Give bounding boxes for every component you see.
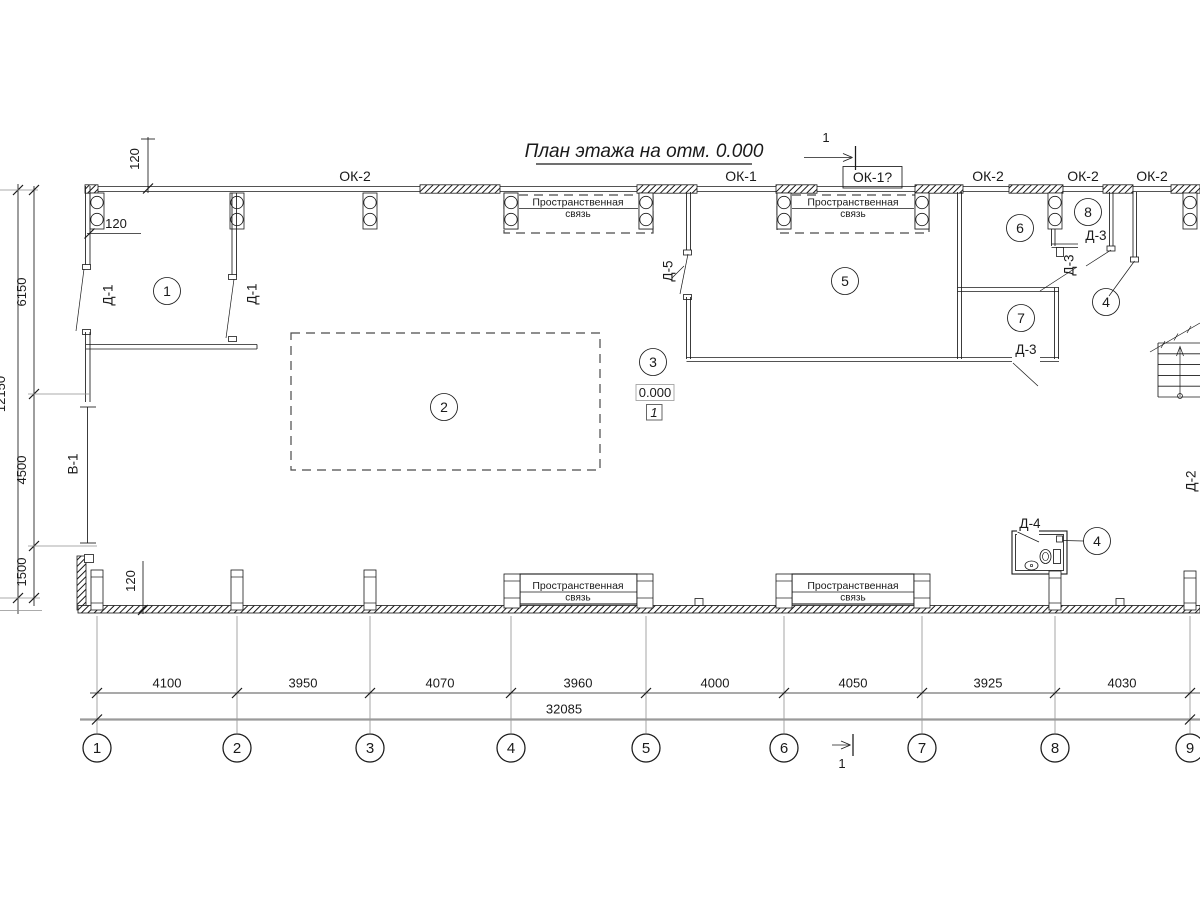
axis-circle-5: 5 bbox=[632, 734, 660, 762]
room-circles: 1 2 3 5 6 7 8 4 4 bbox=[154, 199, 1120, 555]
window-label-ok2: ОК-2 bbox=[1136, 168, 1168, 184]
room-circle-4a: 4 bbox=[1093, 289, 1120, 316]
room-number: 1 bbox=[163, 283, 171, 299]
spatial-tie-top-1: Пространственная связь bbox=[504, 193, 653, 233]
door-leaf bbox=[76, 269, 84, 331]
dim-bottom-7: 4030 bbox=[1108, 676, 1137, 691]
title-text: План этажа на отм. 0.000 bbox=[525, 141, 764, 162]
column bbox=[1184, 571, 1196, 610]
dim-bottom-6: 3925 bbox=[974, 676, 1003, 691]
axis-circle-2: 2 bbox=[223, 734, 251, 762]
drawing-title: План этажа на отм. 0.000 bbox=[525, 141, 764, 164]
spatial-tie-line1: Пространственная bbox=[807, 580, 898, 592]
dim-left-total: 12150 bbox=[0, 376, 8, 412]
spatial-tie-line1: Пространственная bbox=[532, 197, 623, 209]
column bbox=[1183, 193, 1197, 229]
dimensions-left: 12150 6150 4500 1500 bbox=[0, 184, 97, 614]
dim-wall-120: 120 bbox=[105, 216, 127, 231]
room-number: 6 bbox=[1016, 220, 1024, 236]
room-circle-1: 1 bbox=[154, 278, 181, 305]
dimensions-bottom: 4100 3950 4070 3960 4000 4050 3925 4030 … bbox=[80, 616, 1200, 733]
door-label-d5: Д-5 bbox=[661, 260, 676, 281]
room-circle-5: 5 bbox=[832, 268, 859, 295]
spatial-tie-line2: связь bbox=[565, 209, 590, 220]
axis-circle-6: 6 bbox=[770, 734, 798, 762]
dim-bottom-1: 3950 bbox=[289, 676, 318, 691]
left-wall bbox=[76, 186, 96, 543]
axis-circle-1: 1 bbox=[83, 734, 111, 762]
door-leaf bbox=[226, 279, 234, 338]
window-label-ok1: ОК-1 bbox=[725, 168, 757, 184]
axis-circle-9: 9 bbox=[1176, 734, 1200, 762]
top-wall bbox=[85, 185, 1200, 193]
window-label-ok1-alt: ОК-1? bbox=[853, 169, 892, 185]
room-number: 2 bbox=[440, 399, 448, 415]
gate-label-v1: В-1 bbox=[66, 453, 81, 474]
axis-circle-3: 3 bbox=[356, 734, 384, 762]
room-number: 7 bbox=[1017, 310, 1025, 326]
door-label-d3: Д-3 bbox=[1085, 228, 1106, 243]
column bbox=[363, 193, 377, 229]
section-mark-bottom: 1 bbox=[832, 734, 853, 771]
axis-number: 2 bbox=[233, 740, 241, 757]
window-label-ok2: ОК-2 bbox=[1067, 168, 1099, 184]
leader-line bbox=[1063, 541, 1084, 542]
dim-bottom-0: 4100 bbox=[153, 676, 182, 691]
axis-circles: 1 2 3 4 5 6 7 8 9 bbox=[83, 734, 1200, 762]
dim-bottom-4: 4000 bbox=[701, 676, 730, 691]
door-leaf bbox=[1086, 250, 1111, 266]
door-label-d4: Д-4 bbox=[1019, 516, 1041, 531]
dim-wall-120: 120 bbox=[127, 148, 142, 170]
spatial-tie-bottom-1: Пространственная связь bbox=[504, 574, 653, 608]
axis-number: 3 bbox=[366, 740, 374, 757]
section-label: 1 bbox=[838, 756, 845, 771]
section-label: 1 bbox=[822, 130, 829, 145]
section-mark-top: 1 bbox=[804, 130, 856, 170]
axis-circle-8: 8 bbox=[1041, 734, 1069, 762]
room-circle-3: 3 bbox=[640, 349, 667, 376]
door-label-d3: Д-3 bbox=[1062, 254, 1077, 275]
room-circle-8: 8 bbox=[1075, 199, 1102, 226]
spatial-tie-line2: связь bbox=[840, 593, 865, 604]
door-label-d1: Д-1 bbox=[101, 284, 116, 305]
spatial-tie-line1: Пространственная bbox=[532, 580, 623, 592]
room-circle-7: 7 bbox=[1008, 305, 1035, 332]
break-line bbox=[1150, 323, 1200, 352]
door-leaf bbox=[680, 254, 688, 294]
dim-bottom-2: 4070 bbox=[426, 676, 455, 691]
door-label-d1: Д-1 bbox=[245, 283, 260, 304]
axis-number: 1 bbox=[93, 740, 101, 757]
column bbox=[231, 570, 243, 610]
column bbox=[91, 570, 103, 610]
spatial-tie-line2: связь bbox=[565, 593, 590, 604]
stairs bbox=[1150, 323, 1200, 399]
spatial-tie-bottom-2: Пространственная связь bbox=[776, 574, 930, 608]
room-circle-2: 2 bbox=[431, 394, 458, 421]
axis-number: 8 bbox=[1051, 740, 1059, 757]
axis-number: 5 bbox=[642, 740, 650, 757]
spatial-tie-top-2: Пространственная связь bbox=[777, 193, 929, 233]
floor-plan-drawing: План этажа на отм. 0.000 1 1 ОК-2 ОК-1 О… bbox=[0, 0, 1200, 900]
dim-left-2: 1500 bbox=[14, 558, 29, 587]
room-number: 3 bbox=[649, 354, 657, 370]
door-labels: Д-1 Д-1 Д-5 Д-3 Д-3 Д-3 Д-4 Д-2 В-1 bbox=[66, 228, 1199, 531]
axis-circle-7: 7 bbox=[908, 734, 936, 762]
door-leaf bbox=[1013, 363, 1038, 386]
node-number: 1 bbox=[650, 405, 657, 420]
dim-left-0: 6150 bbox=[14, 278, 29, 307]
column bbox=[90, 193, 104, 229]
axis-number: 7 bbox=[918, 740, 926, 757]
axis-circle-4: 4 bbox=[497, 734, 525, 762]
window-label-ok2: ОК-2 bbox=[972, 168, 1004, 184]
dim-bottom-total: 32085 bbox=[546, 702, 582, 717]
dim-bottom-5: 4050 bbox=[839, 676, 868, 691]
door-label-d3: Д-3 bbox=[1015, 342, 1036, 357]
dim-bottom-3: 3960 bbox=[564, 676, 593, 691]
spatial-tie-line2: связь bbox=[840, 209, 865, 220]
axis-number: 6 bbox=[780, 740, 788, 757]
elevation-value: 0.000 bbox=[639, 385, 672, 400]
axis-number: 4 bbox=[507, 740, 515, 757]
axis-number: 9 bbox=[1186, 740, 1194, 757]
wc-room bbox=[1012, 530, 1084, 575]
room-number: 5 bbox=[841, 273, 849, 289]
plan-canvas: План этажа на отм. 0.000 1 1 ОК-2 ОК-1 О… bbox=[0, 0, 1200, 900]
spatial-tie-line1: Пространственная bbox=[807, 197, 898, 209]
door-label-d2: Д-2 bbox=[1184, 470, 1199, 491]
column bbox=[1048, 193, 1062, 229]
window-label-ok2: ОК-2 bbox=[339, 168, 371, 184]
room-number: 8 bbox=[1084, 204, 1092, 220]
dim-left-1: 4500 bbox=[14, 456, 29, 485]
column bbox=[1049, 571, 1061, 610]
room-number: 4 bbox=[1102, 294, 1110, 310]
room5-walls bbox=[672, 192, 1059, 386]
room-circle-6: 6 bbox=[1007, 215, 1034, 242]
room-circle-4b: 4 bbox=[1084, 528, 1111, 555]
dim-wall-120: 120 bbox=[123, 570, 138, 592]
column bbox=[364, 570, 376, 610]
room-number: 4 bbox=[1093, 533, 1101, 549]
elevation-mark: 0.000 1 bbox=[636, 385, 674, 421]
